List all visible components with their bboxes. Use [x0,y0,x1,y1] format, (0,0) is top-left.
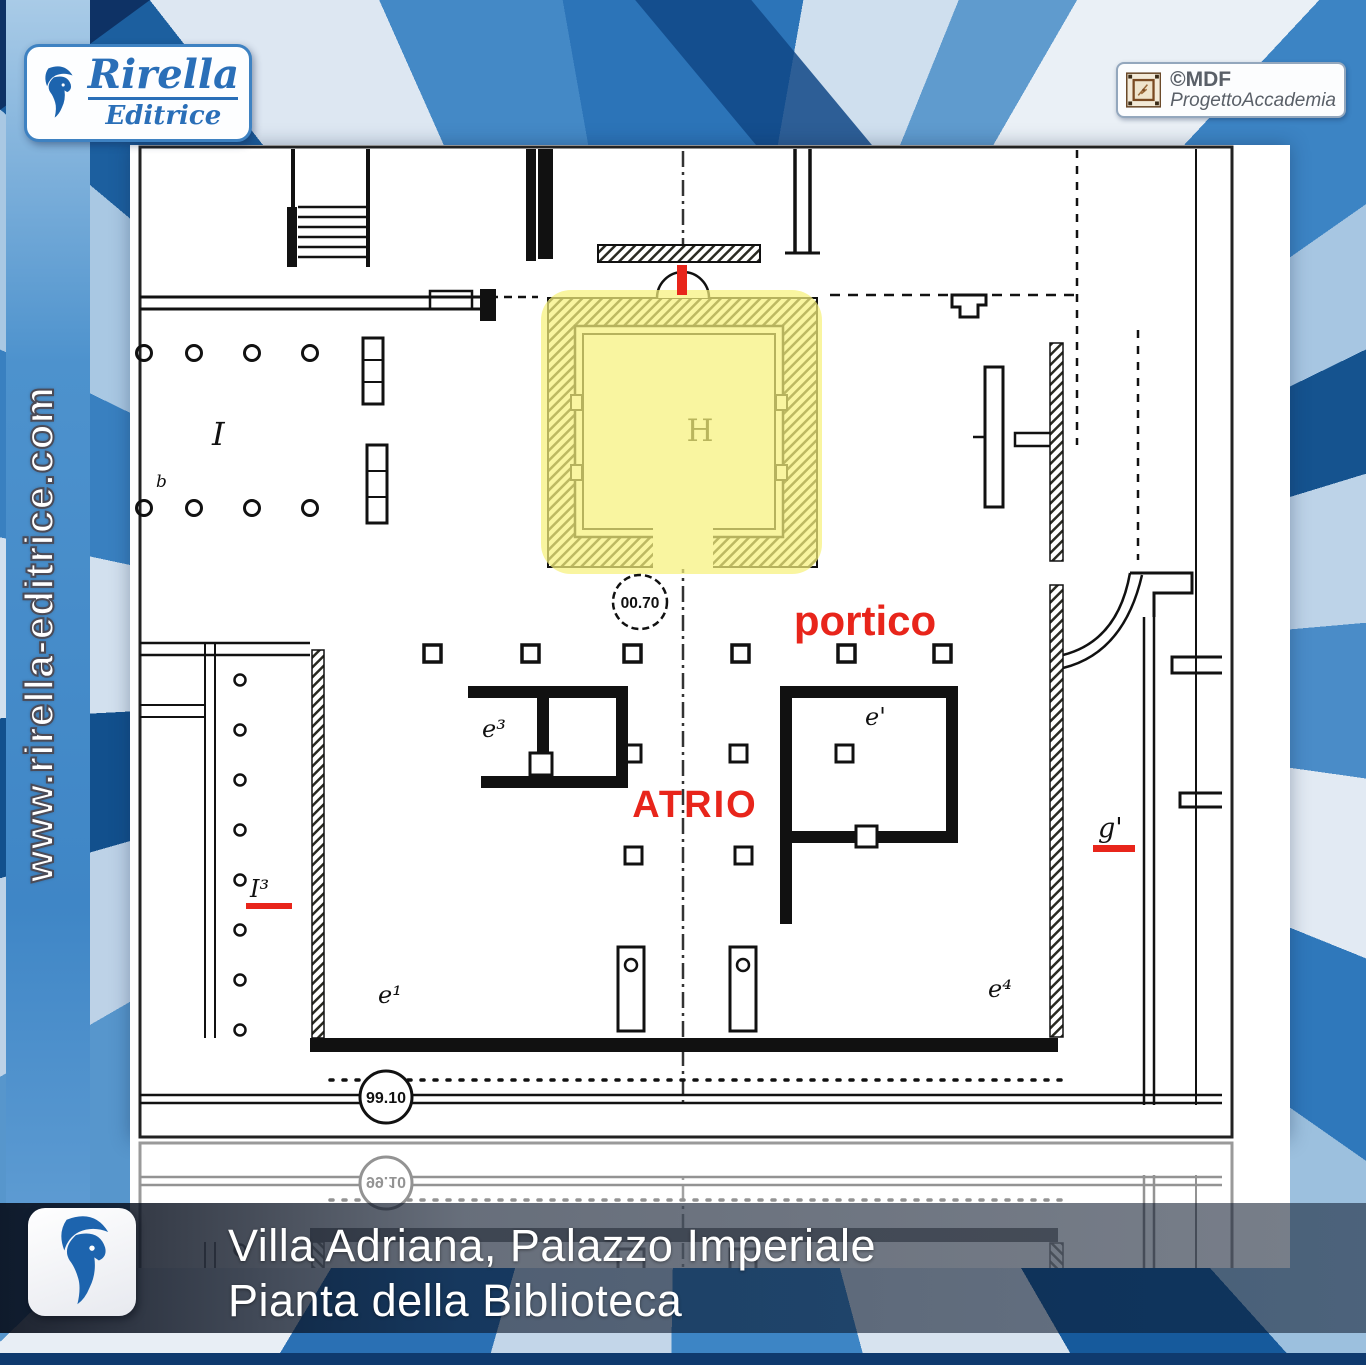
website-url: www.rirella-editrice.com [16,386,63,882]
label-e3: e³ [482,715,506,743]
caption-text: Villa Adriana, Palazzo Imperiale Pianta … [228,1218,876,1328]
credit-line2: ProgettoAccademia [1170,91,1336,111]
caption-line1: Villa Adriana, Palazzo Imperiale [228,1218,876,1273]
floor-plan-panel: H 00.70 [130,145,1290,1140]
right-structures [973,149,1222,1105]
label-i: I [211,415,226,453]
label-e-apos: e' [865,703,886,731]
elevation-lower-value: 99.10 [366,1090,406,1107]
label-atrio: ATRIO [632,784,757,826]
credit-text: ©MDF ProgettoAccademia [1170,69,1336,111]
label-b: b [156,472,167,492]
brand-title: Rirella [88,55,239,95]
brand-subtitle: Editrice [105,101,221,131]
credit-line1: ©MDF [1170,69,1336,91]
i3-red-underline [246,903,292,909]
biblioteca-highlight [541,290,822,574]
label-e1: e¹ [378,981,402,1009]
label-g: g' [1098,813,1123,844]
page: www.rirella-editrice.com [0,0,1366,1365]
floor-plan-drawing: H 00.70 [130,145,1290,1140]
label-portico: portico [794,597,936,644]
mosaic-emblem-icon [1126,67,1161,113]
publisher-badge: Rirella Editrice [24,44,252,142]
label-e4: e⁴ [988,975,1012,1003]
elevation-lower: 99.10 [360,1071,412,1123]
elevation-upper: 00.70 [613,575,667,629]
elevation-upper-value: 00.70 [621,595,660,612]
axis-red-tick [677,265,687,295]
bottom-edge-decoration [0,1353,1366,1365]
left-corridor [140,643,324,1038]
credit-badge: ©MDF ProgettoAccademia [1116,62,1346,118]
top-left-structures [137,149,537,523]
svg-text:99.10: 99.10 [366,1173,406,1190]
caption-logo [28,1208,136,1316]
brand-rule [88,97,238,100]
brand-text: Rirella Editrice [88,55,239,131]
athena-helmet-icon [43,1212,121,1312]
athena-helmet-icon [35,55,80,131]
caption-line2: Pianta della Biblioteca [228,1273,876,1328]
label-i3: I³ [249,875,269,903]
staircase [298,207,366,257]
portico-columns [424,645,951,662]
g-red-underline [1093,845,1135,852]
